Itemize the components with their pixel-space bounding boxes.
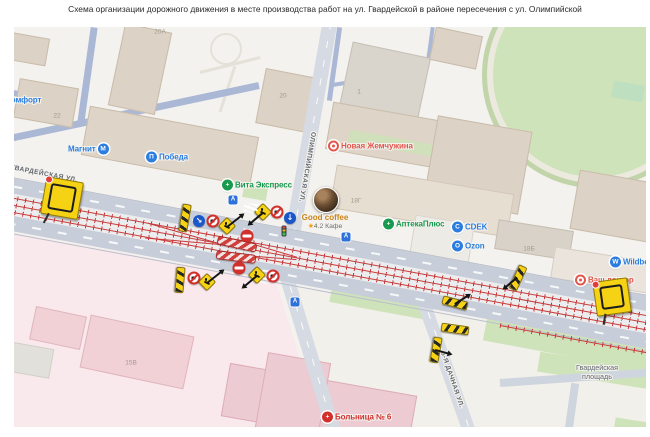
map-canvas[interactable]: ГВАРДЕЙСКАЯ УЛ.ОЛИМПИЙСКАЯ УЛ.5-Я ДАЧНАЯ… (14, 27, 646, 427)
poi-circle[interactable]: OOzon (452, 241, 485, 252)
poi-rating: ★4.2 Кафе (280, 222, 370, 230)
prohibition-sign-icon (267, 270, 280, 283)
poi-icon: W (610, 257, 621, 268)
house-number: 22 (53, 113, 60, 120)
poi-label: Ozon (465, 242, 485, 251)
detour-scheme-board-icon (40, 176, 84, 220)
street-label: ОЛИМПИЙСКАЯ УЛ. (297, 131, 316, 203)
house-number: 15В (125, 360, 137, 367)
transit-stop-icon[interactable]: А (342, 233, 351, 242)
street-label: 5-Я ДАЧНАЯ УЛ. (439, 351, 465, 409)
house-number: 18Г (351, 198, 362, 205)
poi-icon: O (452, 241, 463, 252)
poi-icon (575, 275, 586, 286)
poi-circle[interactable]: CCDEK (452, 222, 487, 233)
mandatory-direction-sign-icon: ↘ (193, 215, 205, 227)
house-number: 18Б (523, 246, 535, 253)
no-entry-sign-icon (233, 262, 246, 275)
house-number: 20 (279, 93, 286, 100)
poi-icon: + (383, 219, 394, 230)
poi-none[interactable]: Комфорт (14, 96, 41, 105)
barrier-board-icon (441, 323, 470, 336)
poi-label: Вита Экспресс (235, 181, 292, 190)
sign-pole (603, 314, 607, 325)
crosswalk-marking (243, 202, 258, 213)
poi-circle[interactable]: ММагнит (68, 144, 109, 155)
map-overlay: ГВАРДЕЙСКАЯ УЛ.ОЛИМПИЙСКАЯ УЛ.5-Я ДАЧНАЯ… (14, 27, 646, 427)
poi-redcross[interactable]: +Больница № 6 (322, 412, 391, 423)
page-title: Схема организации дорожного движения в м… (0, 4, 650, 14)
poi-label: АптекаПлюс (396, 220, 444, 229)
poi-label: CDEK (465, 223, 487, 232)
prohibition-sign-icon (271, 206, 284, 219)
star-icon: ★ (308, 223, 314, 230)
poi-cross[interactable]: +Вита Экспресс (222, 180, 292, 191)
street-label: Гвардейская площадь (568, 363, 626, 381)
mandatory-direction-sign-icon: ↓ (284, 212, 296, 224)
poi-label: Больница № 6 (335, 413, 391, 422)
poi-label: Комфорт (14, 96, 41, 105)
barrier-board-icon (174, 267, 185, 294)
traffic-scheme-page: Схема организации дорожного движения в м… (0, 0, 650, 437)
poi-icon (328, 141, 339, 152)
house-number: 1 (357, 89, 361, 96)
traffic-light-icon (282, 226, 287, 237)
poi-icon: + (322, 412, 333, 423)
poi-photo-avatar[interactable] (313, 187, 339, 213)
house-number: 20А (154, 29, 166, 36)
poi-circle[interactable]: ППобеда (146, 152, 188, 163)
detour-scheme-board-icon (592, 277, 632, 317)
poi-icon: М (98, 144, 109, 155)
poi-label: Wildberries (623, 258, 646, 267)
transit-stop-icon[interactable]: А (229, 196, 238, 205)
poi-cross[interactable]: +АптекаПлюс (383, 219, 444, 230)
poi-label: Победа (159, 153, 188, 162)
poi-icon: + (222, 180, 233, 191)
poi-label: Магнит (68, 145, 96, 154)
poi-circle[interactable]: WWildberries (610, 257, 646, 268)
transit-stop-icon[interactable]: А (291, 298, 300, 307)
poi-ring[interactable]: Новая Жемчужина (328, 141, 413, 152)
poi-icon: П (146, 152, 157, 163)
poi-label: Новая Жемчужина (341, 142, 413, 151)
poi-icon: C (452, 222, 463, 233)
barrier-board-icon (178, 203, 192, 232)
sign-pole (43, 213, 50, 224)
